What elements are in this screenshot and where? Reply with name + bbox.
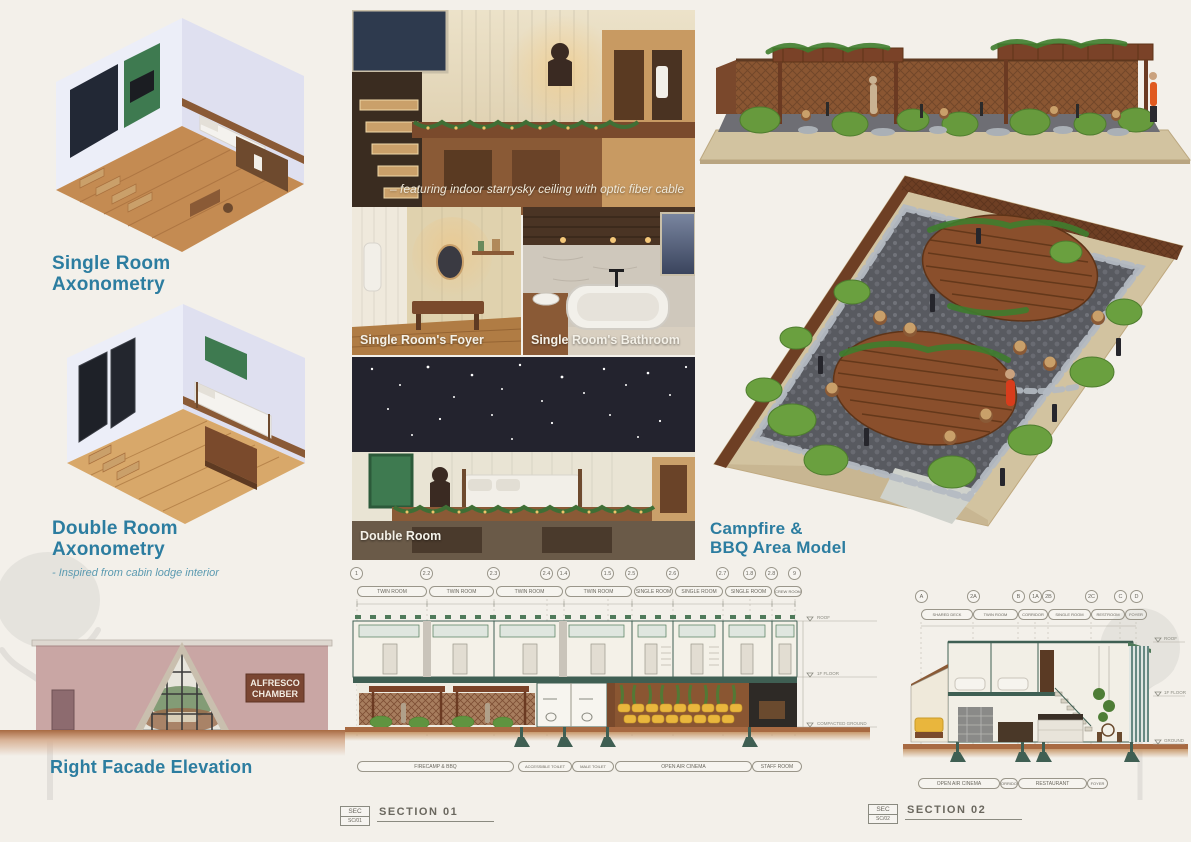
zone-tag: STAFF ROOM: [752, 761, 802, 772]
grid-bubble: 1A: [1029, 590, 1042, 603]
bbq-model-side-view: [698, 12, 1191, 165]
grid-bubble: 1: [350, 567, 363, 580]
grid-bubble: 2.8: [765, 567, 778, 580]
room-tag: SINGLE ROOM: [675, 586, 723, 597]
grid-bubble: 1.8: [743, 567, 756, 580]
section-01-tag: SEC SC/01: [340, 806, 370, 826]
section-02-title-block: SEC SC/02 SECTION 02: [868, 804, 1022, 824]
presentation-board: Single Room Axonometry Double Room Axono…: [0, 0, 1191, 842]
starry-ceiling-photo: – featuring indoor starrysky ceiling wit…: [352, 10, 695, 215]
double-room-axonometry-render: [55, 296, 325, 524]
zone-tag: MALE TOILET: [572, 761, 614, 772]
bbq-model-aerial-view: [700, 168, 1191, 530]
double-room-note: - Inspired from cabin lodge interior: [52, 567, 219, 579]
room-tag: SINGLE ROOM: [725, 586, 772, 597]
foyer-caption: Single Room's Foyer: [360, 333, 484, 347]
section-01-drawing: ROOF 1F FLOOR COMPACTED GROUND: [345, 599, 885, 759]
level-label: 1F FLOOR: [817, 671, 840, 676]
grid-bubble: 2A: [967, 590, 980, 603]
section-01-title-block: SEC SC/01 SECTION 01: [340, 806, 494, 826]
double-room-caption: Double Room: [360, 529, 441, 543]
section-02-title: SECTION 02: [905, 804, 1022, 820]
grid-bubble: 9: [788, 567, 801, 580]
facade-sign-line1: ALFRESCO: [250, 678, 300, 688]
section-02-block: A 2A B 1A 2B 2C C D SHARED DECK TWIN ROO…: [903, 590, 1188, 805]
grid-bubble: 2.4: [540, 567, 553, 580]
room-tag: SINGLE ROOM: [634, 586, 673, 597]
single-room-title: Single Room Axonometry: [52, 254, 170, 296]
level-label: GROUND: [1164, 738, 1185, 743]
right-facade-elevation-drawing: ALFRESCO CHAMBER: [0, 628, 345, 760]
single-room-bathroom-photo: Single Room's Bathroom: [523, 207, 695, 355]
room-tag: SINGLE ROOM: [1048, 609, 1091, 620]
grid-bubble: C: [1114, 590, 1127, 603]
facade-sign-line2: CHAMBER: [252, 689, 298, 699]
zone-tag: OPEN AIR CINEMA: [918, 778, 1000, 789]
level-label: 1F FLOOR: [1164, 690, 1187, 695]
zone-tag: CORRIDOR: [1000, 778, 1018, 789]
level-label: ROOF: [1164, 636, 1177, 641]
section-02-tag: SEC SC/02: [868, 804, 898, 824]
single-room-title-line2: Axonometry: [52, 275, 170, 296]
single-room-foyer-photo: Single Room's Foyer: [352, 207, 521, 355]
room-tag: TWIN ROOM: [973, 609, 1018, 620]
single-room-axonometry-render: [40, 12, 320, 257]
grid-bubble: 2.5: [625, 567, 638, 580]
zone-tag: FIRECAMP & BBQ: [357, 761, 514, 772]
grid-bubble: 1.5: [601, 567, 614, 580]
grid-bubble: 2.7: [716, 567, 729, 580]
bbq-model-title: Campfire & BBQ Area Model: [710, 520, 846, 557]
zone-tag: OPEN AIR CINEMA: [615, 761, 752, 772]
section-02-drawing: ROOF 1F FLOOR GROUND: [903, 622, 1188, 774]
facade-title: Right Facade Elevation: [50, 758, 252, 778]
room-tag: RESTROOM: [1091, 609, 1125, 620]
zone-tag: ACCESSIBLE TOILET: [518, 761, 572, 772]
grid-bubble: 2.3: [487, 567, 500, 580]
room-tag: TWIN ROOM: [429, 586, 494, 597]
grid-bubble: 2.2: [420, 567, 433, 580]
level-label: COMPACTED GROUND: [817, 721, 867, 726]
room-tag: TWIN ROOM: [357, 586, 427, 597]
zone-tag: FOYER: [1087, 778, 1108, 789]
starry-ceiling-caption: – featuring indoor starrysky ceiling wit…: [390, 182, 684, 196]
room-tag: CORRIDOR: [1018, 609, 1048, 620]
zone-tag: RESTAURANT: [1018, 778, 1087, 789]
double-room-title: Double Room Axonometry: [52, 519, 178, 561]
single-room-title-line1: Single Room: [52, 254, 170, 275]
room-tag: TWIN ROOM: [496, 586, 563, 597]
grid-bubble: A: [915, 590, 928, 603]
grid-bubble: 2B: [1042, 590, 1055, 603]
level-label: ROOF: [817, 615, 830, 620]
grid-bubble: 1.4: [557, 567, 570, 580]
grid-bubble: B: [1012, 590, 1025, 603]
section-01-block: 1 2.2 2.3 2.4 1.4 1.5 2.5 2.6 2.7 1.8 2.…: [345, 565, 885, 815]
grid-bubble: 2C: [1085, 590, 1098, 603]
double-room-title-line2: Axonometry: [52, 540, 178, 561]
bbq-model-title-line1: Campfire &: [710, 520, 846, 539]
room-tag: SHARED DECK: [921, 609, 973, 620]
bathroom-caption: Single Room's Bathroom: [531, 333, 680, 347]
double-room-photo: Double Room: [352, 357, 695, 560]
room-tag: CREW ROOM: [774, 586, 802, 597]
room-tag: FOYER: [1125, 609, 1147, 620]
section-01-title: SECTION 01: [377, 806, 494, 822]
bbq-model-title-line2: BBQ Area Model: [710, 539, 846, 558]
room-tag: TWIN ROOM: [565, 586, 632, 597]
grid-bubble: D: [1130, 590, 1143, 603]
double-room-title-line1: Double Room: [52, 519, 178, 540]
grid-bubble: 2.6: [666, 567, 679, 580]
